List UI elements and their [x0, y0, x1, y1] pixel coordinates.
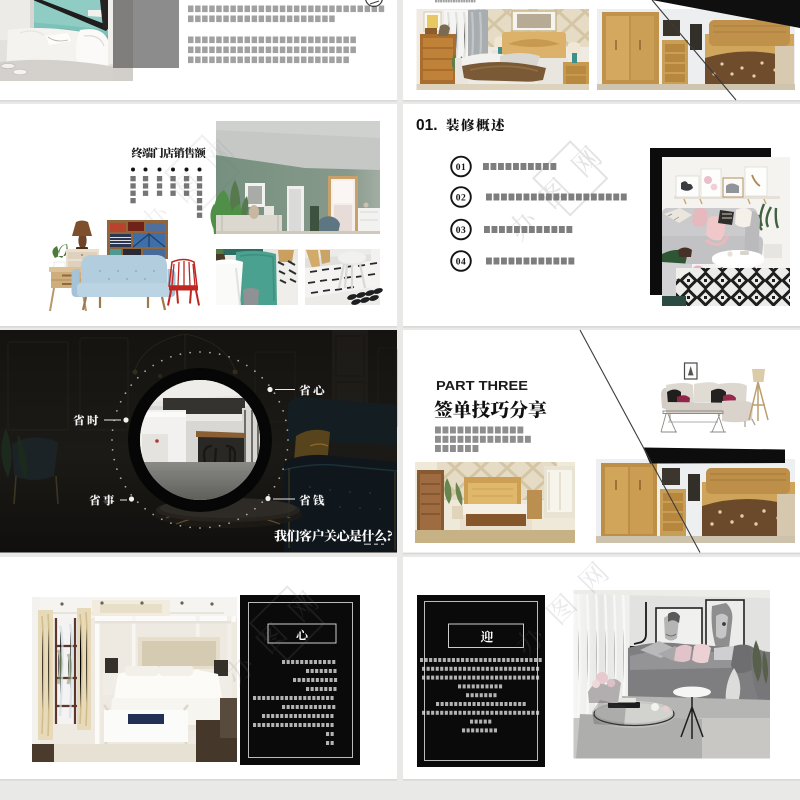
- svg-text:03: 03: [456, 226, 467, 236]
- svg-text:01: 01: [456, 163, 467, 173]
- svg-text:02: 02: [456, 193, 467, 203]
- svg-text:01.: 01.: [416, 117, 438, 134]
- svg-text:04: 04: [456, 257, 467, 267]
- svg-text:PART THREE: PART THREE: [436, 378, 528, 393]
